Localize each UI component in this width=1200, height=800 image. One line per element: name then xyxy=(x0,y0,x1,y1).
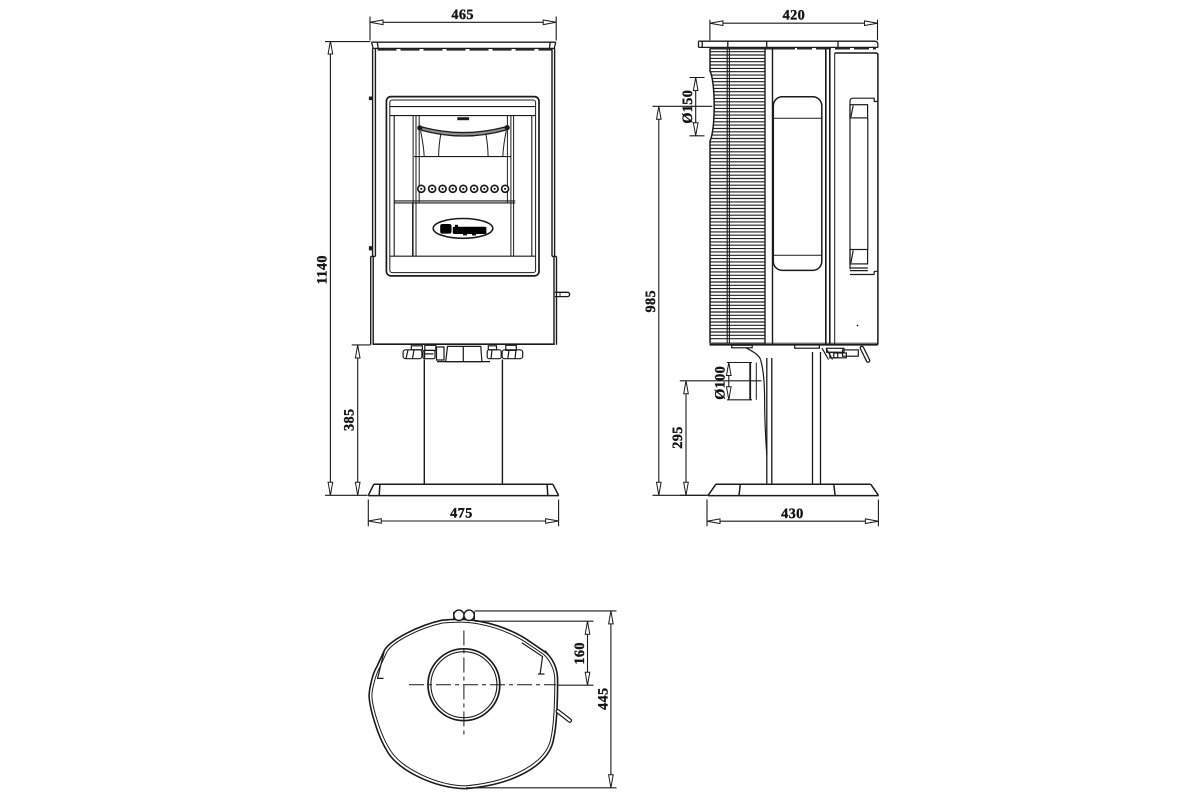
svg-text:475: 475 xyxy=(450,506,473,522)
svg-text:295: 295 xyxy=(670,426,686,449)
svg-text:445: 445 xyxy=(596,687,612,710)
svg-text:385: 385 xyxy=(342,408,358,431)
svg-text:465: 465 xyxy=(451,7,474,23)
svg-text:1140: 1140 xyxy=(314,255,330,284)
svg-text:Ø100: Ø100 xyxy=(713,366,729,400)
svg-text:985: 985 xyxy=(643,290,659,313)
svg-text:420: 420 xyxy=(783,8,806,24)
svg-text:430: 430 xyxy=(781,506,804,522)
svg-text:160: 160 xyxy=(572,642,588,665)
